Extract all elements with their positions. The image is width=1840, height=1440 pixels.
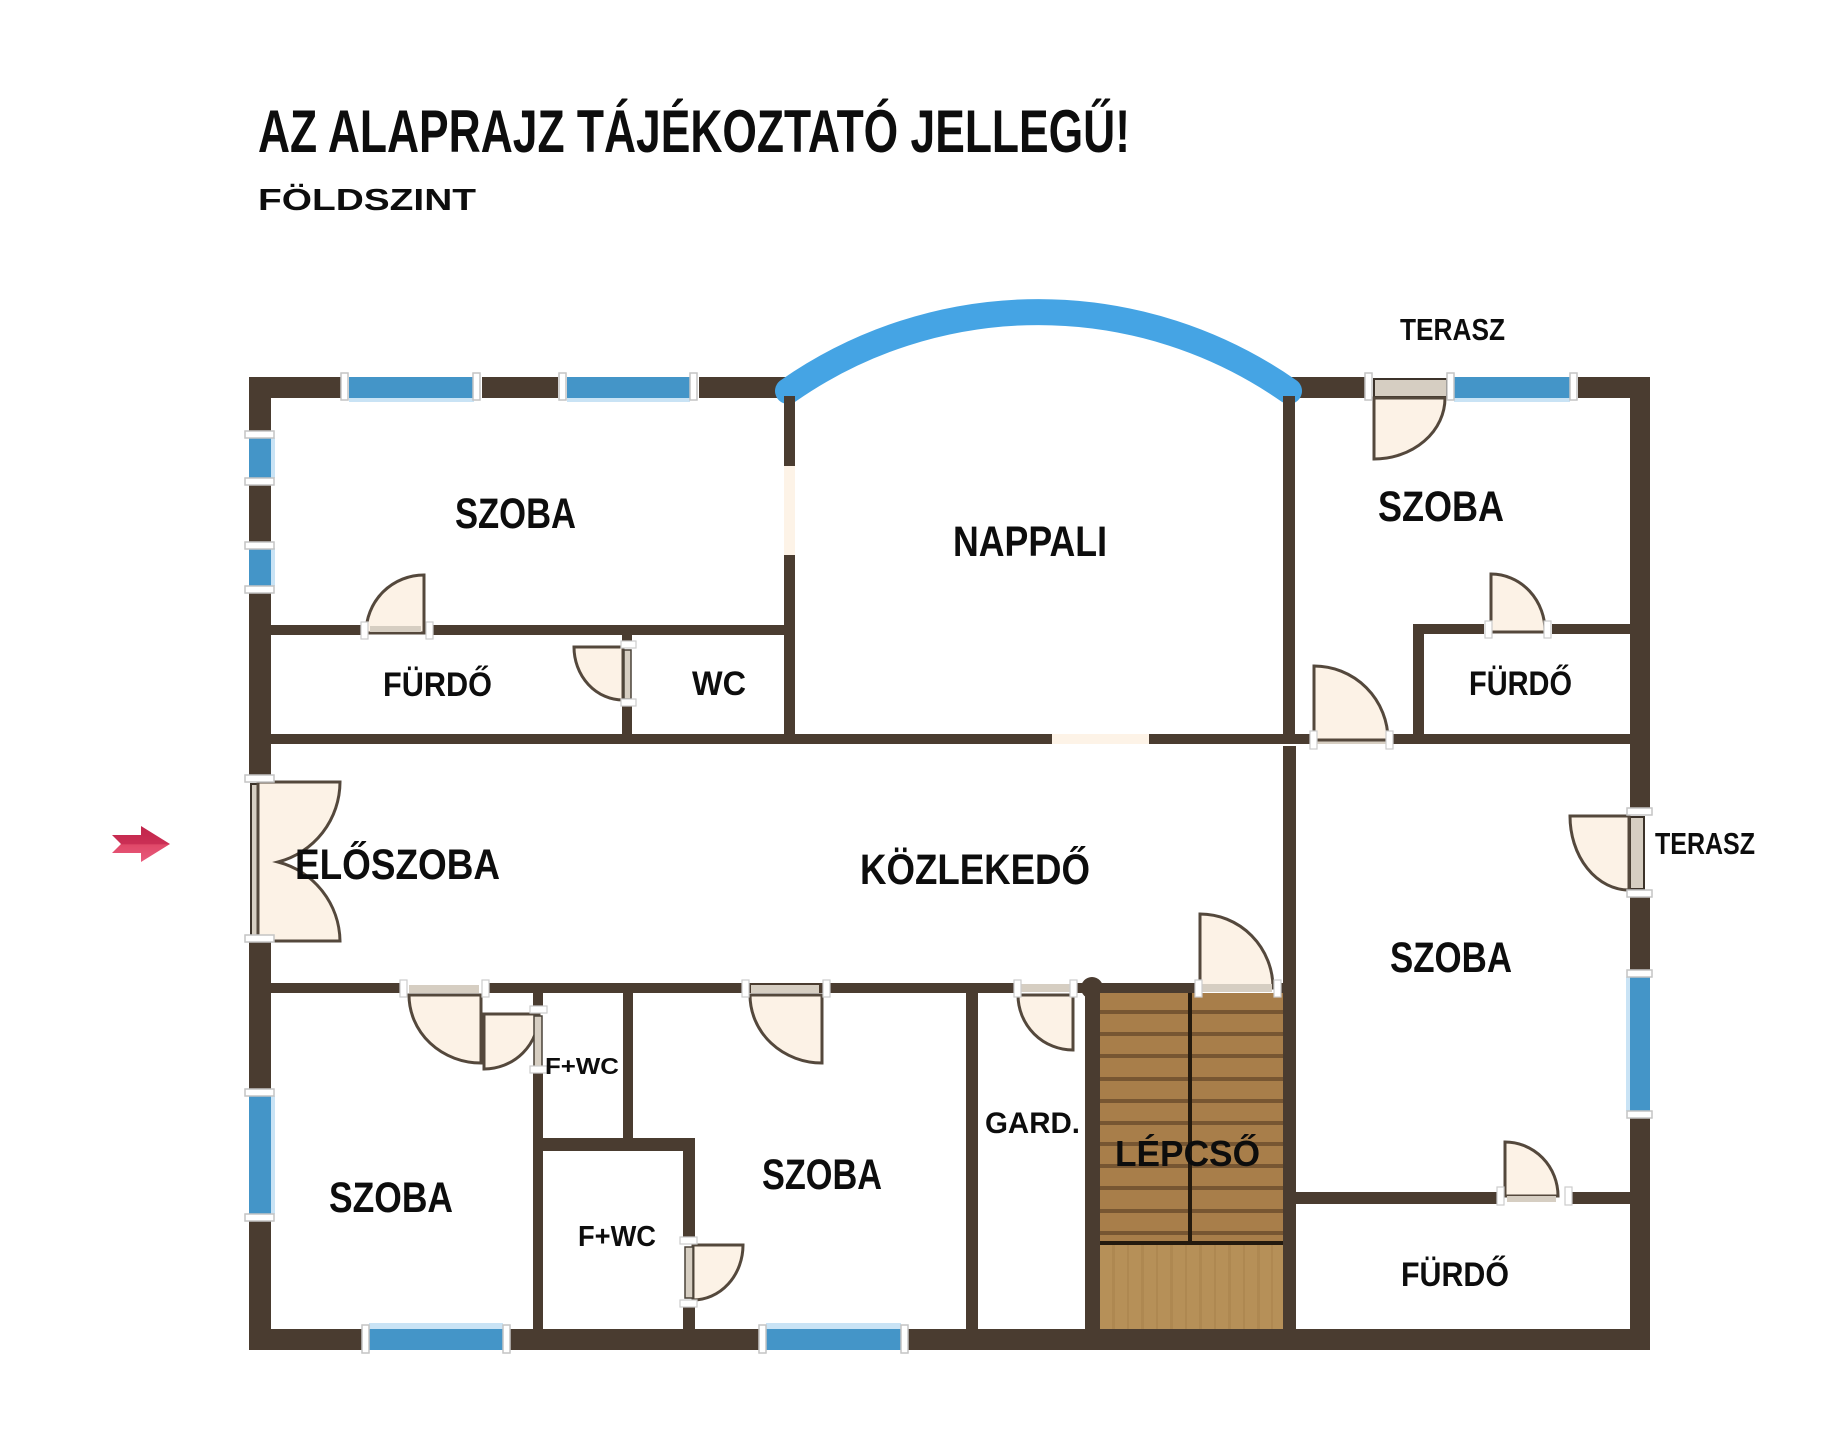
svg-text:FÜRDŐ: FÜRDŐ — [1469, 665, 1572, 703]
svg-text:FÜRDŐ: FÜRDŐ — [383, 666, 492, 704]
svg-text:KÖZLEKEDŐ: KÖZLEKEDŐ — [860, 846, 1090, 894]
svg-text:F+WC: F+WC — [545, 1053, 619, 1079]
svg-text:SZOBA: SZOBA — [762, 1151, 882, 1199]
svg-text:F+WC: F+WC — [578, 1221, 656, 1253]
svg-text:SZOBA: SZOBA — [1378, 483, 1504, 531]
svg-text:NAPPALI: NAPPALI — [953, 518, 1107, 566]
svg-text:ELŐSZOBA: ELŐSZOBA — [295, 841, 500, 889]
svg-text:TERASZ: TERASZ — [1655, 826, 1755, 861]
svg-text:GARD.: GARD. — [985, 1107, 1080, 1140]
svg-text:SZOBA: SZOBA — [455, 490, 576, 538]
svg-text:TERASZ: TERASZ — [1400, 312, 1505, 347]
svg-text:LÉPCSŐ: LÉPCSŐ — [1115, 1132, 1260, 1174]
svg-text:WC: WC — [692, 665, 746, 703]
svg-text:SZOBA: SZOBA — [329, 1174, 453, 1222]
svg-text:AZ ALAPRAJZ TÁJÉKOZTATÓ JELLEG: AZ ALAPRAJZ TÁJÉKOZTATÓ JELLEGŰ! — [258, 98, 1130, 165]
svg-text:FÜRDŐ: FÜRDŐ — [1401, 1256, 1509, 1294]
svg-text:FÖLDSZINT: FÖLDSZINT — [258, 182, 476, 217]
svg-text:SZOBA: SZOBA — [1390, 934, 1512, 982]
